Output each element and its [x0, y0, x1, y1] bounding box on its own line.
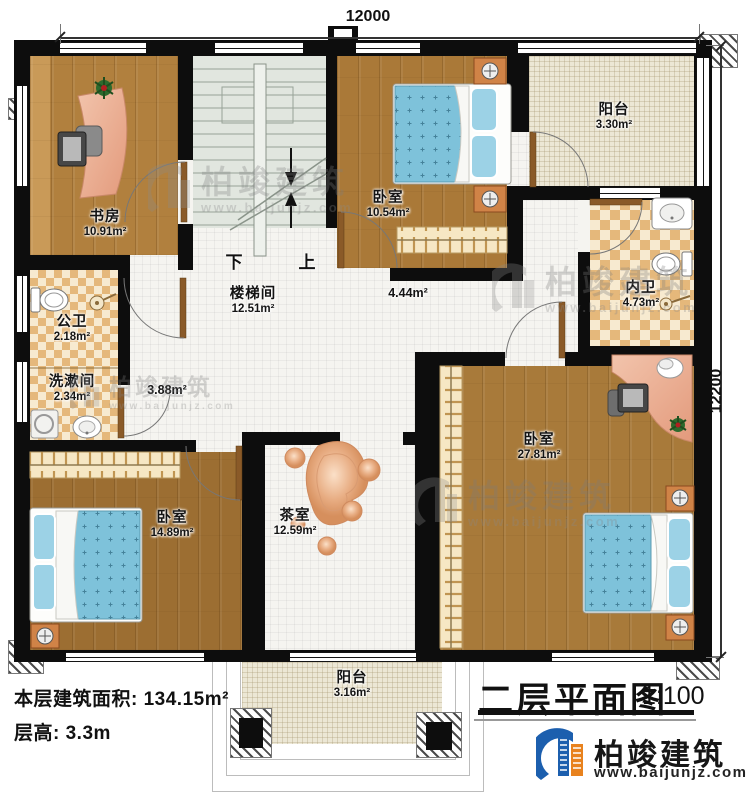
room-label-bedroom-top: 卧室 10.54m²: [367, 186, 410, 219]
room-label-balcony-top: 阳台 3.30m²: [596, 98, 632, 131]
room-area: 10.91m²: [84, 226, 127, 238]
room-label-washroom: 洗漱间 2.34m²: [49, 370, 96, 403]
room-label-bedroom-right: 卧室 27.81m²: [518, 428, 561, 461]
room-area: 3.16m²: [334, 687, 370, 699]
wall: [415, 352, 440, 650]
room-name: 内卫: [623, 276, 659, 297]
window: [66, 652, 204, 662]
room-area: 27.81m²: [518, 449, 561, 461]
room-area: 14.89m²: [151, 527, 194, 539]
room-name: 洗漱间: [49, 370, 96, 391]
floor-area-summary: 本层建筑面积: 134.15m²: [14, 684, 229, 711]
room-area: 12.51m²: [230, 303, 277, 315]
room-label-inner-bath: 内卫 4.73m²: [623, 276, 659, 309]
room-label-balcony-bottom: 阳台 3.16m²: [334, 666, 370, 699]
room-area: 3.88m²: [147, 383, 187, 397]
room-area: 4.73m²: [623, 297, 659, 309]
bedroom-left-floor: [30, 452, 242, 650]
bath-divider-line: [30, 367, 118, 369]
room-label-bedroom-left: 卧室 14.89m²: [151, 506, 194, 539]
hall-area-small: 3.88m²: [147, 383, 187, 397]
window: [600, 187, 660, 199]
dimension-line-top: [60, 37, 700, 39]
dimension-width-label: 12000: [346, 8, 391, 26]
room-name: 阳台: [334, 666, 370, 687]
room-label-study: 书房 10.91m²: [84, 205, 127, 238]
study-floor-edge: [30, 56, 50, 255]
room-label-public-bath: 公卫 2.18m²: [54, 310, 90, 343]
drawing-scale: 1:100: [642, 682, 705, 711]
room-name: 卧室: [367, 186, 410, 207]
hall-area-large: 4.44m²: [388, 286, 428, 300]
window: [356, 42, 420, 54]
wall: [390, 268, 523, 281]
porch-column-core: [426, 722, 452, 750]
room-area: 10.54m²: [367, 207, 410, 219]
wall: [440, 352, 505, 366]
room-name: 茶室: [274, 504, 317, 525]
floor-plan-canvas: 书房 10.91m² 楼梯间 12.51m² 卧室 10.54m² 阳台 3.3…: [0, 0, 750, 795]
dimension-height-label: 12200: [708, 351, 726, 431]
room-area: 2.34m²: [49, 391, 96, 403]
stair-down-label: 下: [226, 248, 243, 273]
room-area: 2.18m²: [54, 331, 90, 343]
window: [552, 652, 654, 662]
brand-logo-icon: [536, 728, 586, 786]
stair-floor: [193, 56, 326, 228]
room-label-tea-room: 茶室 12.59m²: [274, 504, 317, 537]
room-name: 楼梯间: [230, 282, 277, 303]
room-area: 4.44m²: [388, 286, 428, 300]
porch-column-core: [239, 718, 263, 748]
door-opening: [178, 160, 193, 224]
brand-website: www.baijunjz.com: [594, 764, 747, 781]
page-title: 二层平面图: [478, 672, 668, 723]
window: [60, 42, 146, 54]
wall: [14, 255, 130, 270]
bedroom-right-floor: [440, 366, 694, 650]
title-underline: [478, 710, 694, 715]
room-area: 12.59m²: [274, 525, 317, 537]
room-name: 卧室: [151, 506, 194, 527]
title-underline-thin: [474, 719, 696, 721]
room-label-stairwell: 楼梯间 12.51m²: [230, 282, 277, 315]
wall: [14, 440, 196, 452]
room-name: 书房: [84, 205, 127, 226]
window: [16, 362, 28, 422]
wall: [507, 200, 523, 268]
balcony-door-window: [290, 652, 416, 662]
window: [215, 42, 303, 54]
room-name: 卧室: [518, 428, 561, 449]
wall: [326, 56, 337, 228]
wall: [578, 252, 590, 352]
floor-height-summary: 层高: 3.3m: [14, 718, 111, 745]
bedroom-top-floor: [337, 56, 507, 268]
room-area: 3.30m²: [596, 119, 632, 131]
wall: [242, 432, 265, 650]
wall: [578, 346, 694, 366]
stair-up-label: 上: [299, 248, 316, 273]
wall: [118, 255, 130, 385]
door-opening: [578, 200, 590, 252]
wall: [265, 432, 340, 445]
room-name: 公卫: [54, 310, 90, 331]
window: [16, 86, 28, 186]
window: [16, 276, 28, 332]
room-name: 阳台: [596, 98, 632, 119]
inner-bath-floor: [590, 200, 694, 346]
balcony-railing: [518, 42, 696, 54]
balcony-railing: [696, 58, 710, 186]
